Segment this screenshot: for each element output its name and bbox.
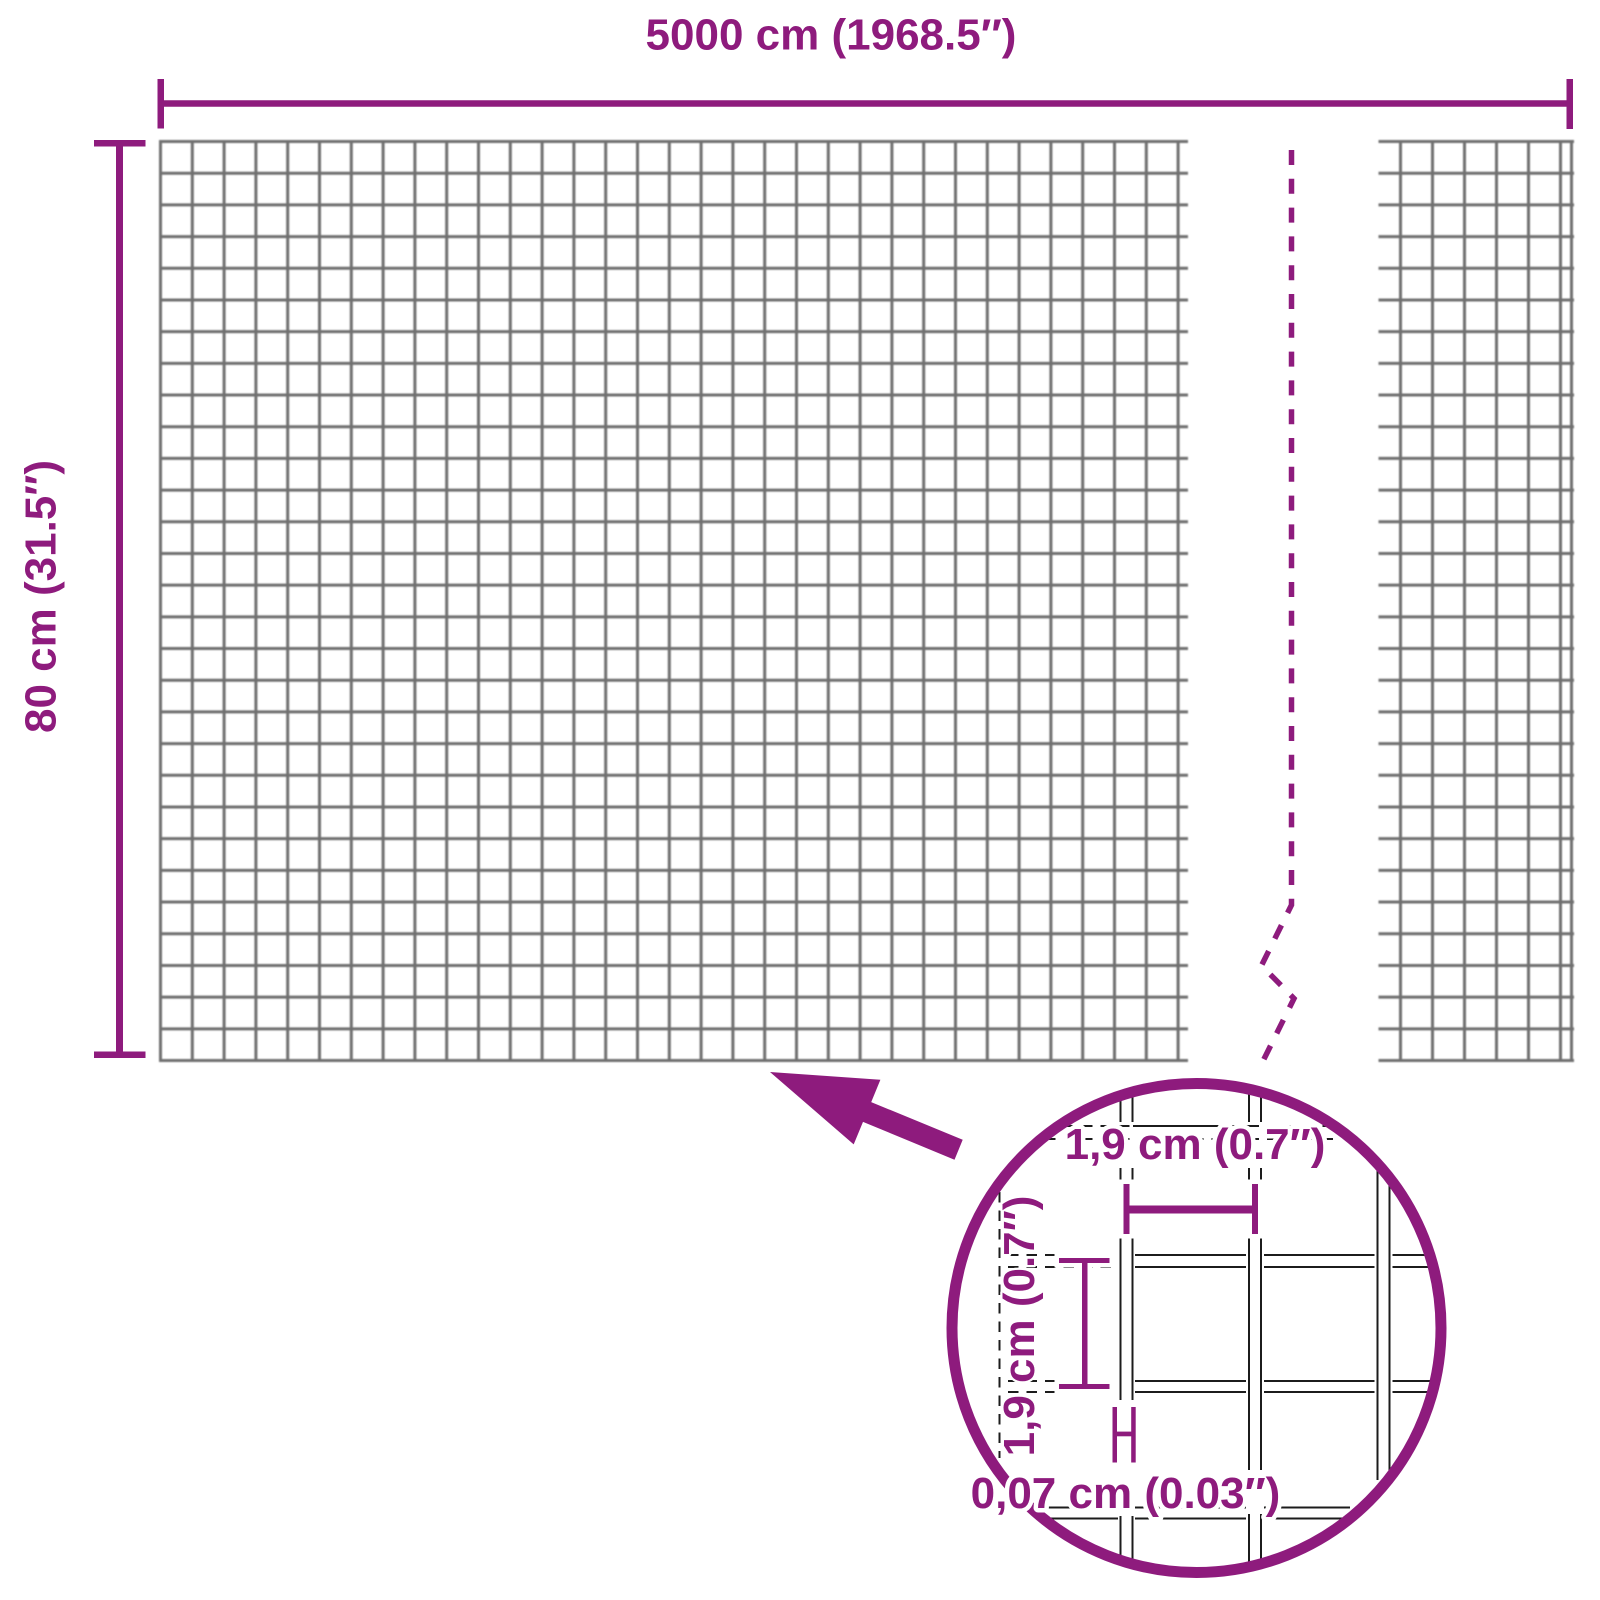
svg-text:0,07 cm (0.03″): 0,07 cm (0.03″)	[971, 1469, 1281, 1518]
svg-text:1,9 cm (0.7″): 1,9 cm (0.7″)	[995, 1196, 1044, 1457]
svg-text:1,9 cm (0.7″): 1,9 cm (0.7″)	[1065, 1120, 1326, 1169]
svg-text:80 cm (31.5″): 80 cm (31.5″)	[17, 460, 66, 733]
svg-text:5000 cm (1968.5″): 5000 cm (1968.5″)	[646, 11, 1017, 60]
